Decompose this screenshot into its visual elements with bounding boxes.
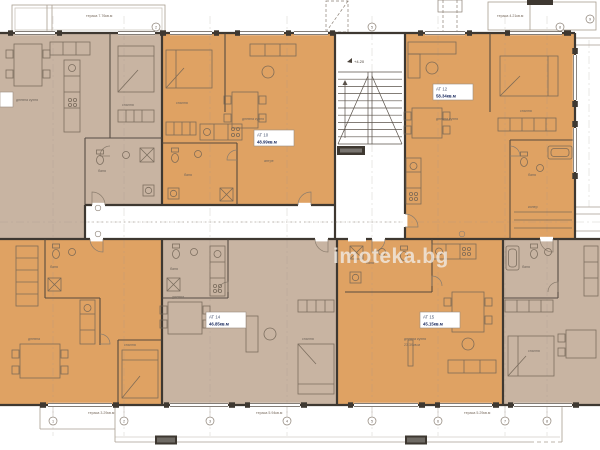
room-label: дневна: [172, 295, 184, 299]
unit-area-text: 48.99кв.м: [257, 140, 277, 145]
watermark-text: imoteka.bg: [333, 245, 449, 268]
terrace-label: тераса 5.94кв.м: [256, 411, 283, 415]
unit-area-text: 45.15кв.м: [423, 322, 443, 327]
room-label: баня: [528, 173, 536, 177]
unit-at14-region: [162, 240, 337, 405]
room-label: 23.39кв.м: [404, 343, 420, 347]
room-label: дневна кухня: [436, 117, 458, 121]
unit-bottomleft-region: [0, 240, 162, 405]
grid-mark: 8: [559, 26, 561, 30]
grid-mark: 7: [504, 420, 506, 424]
shaft-block: [527, 0, 553, 5]
canopy-dashed-outlines: [326, 0, 462, 33]
terrace-label: тераса 4.21кв.м: [497, 14, 524, 18]
unit-label-cutoff-left: [0, 92, 13, 107]
grid-bubbles-bottom: 1 2 3 4 5 6 7 8: [49, 417, 551, 425]
room-label: дневна кухня: [16, 98, 38, 102]
unit-label-at10: АТ 10 48.99кв.м: [254, 130, 294, 146]
terrace-label: тераса 7.76кв.м: [86, 14, 113, 18]
grid-mark: 9: [589, 18, 591, 22]
grid-mark: 5: [371, 26, 373, 30]
right-edge-terrace-lines: [575, 38, 600, 231]
floor-plan-page: +4.20: [0, 0, 600, 450]
unit-id-text: АТ 12: [436, 87, 448, 92]
level-mark-text: +4.20: [354, 59, 365, 64]
unit-id-text: АТ 14: [209, 315, 221, 320]
unit-id-text: АТ 15: [423, 315, 435, 320]
room-label: баня: [170, 267, 178, 271]
room-label: антре: [264, 159, 274, 163]
floor-plan-drawing: +4.20: [0, 0, 600, 450]
grid-mark: 6: [437, 420, 439, 424]
room-label: баня: [98, 169, 106, 173]
room-label: спалня: [302, 337, 314, 341]
room-label: килер: [528, 205, 538, 209]
room-label: баня: [50, 265, 58, 269]
grid-mark: 2: [155, 26, 157, 30]
room-label: баня: [184, 173, 192, 177]
room-label: дневна кухня: [242, 117, 264, 121]
unit-id-text: АТ 10: [257, 133, 269, 138]
grid-bubble-right: 9: [586, 15, 594, 23]
grid-mark: 1: [52, 420, 54, 424]
unit-bottomright-region: [503, 240, 600, 405]
room-label: спалня: [528, 349, 540, 353]
grid-mark: 5: [371, 420, 373, 424]
terrace-top-left: [12, 5, 165, 33]
unit-area-text: 46.85кв.м: [209, 322, 229, 327]
terrace-label: тераса 5.29кв.м: [464, 411, 491, 415]
room-label: дневна кухня: [404, 337, 426, 341]
terrace-label: тераса 3.29кв.м: [88, 411, 115, 415]
grid-mark: 2: [123, 420, 125, 424]
room-label: спалня: [124, 343, 136, 347]
room-label: спалня: [122, 103, 134, 107]
grid-mark: 4: [286, 420, 288, 424]
room-label: спалня: [520, 109, 532, 113]
unit-label-at15: АТ 15 45.15кв.м: [420, 312, 460, 328]
room-label: дневна: [28, 337, 40, 341]
room-label: спалня: [176, 101, 188, 105]
unit-label-at12: АТ 12 58.34кв.м: [433, 84, 473, 100]
room-label: баня: [522, 265, 530, 269]
unit-area-text: 58.34кв.м: [436, 94, 456, 99]
grid-mark: 8: [546, 420, 548, 424]
unit-label-at14: АТ 14 46.85кв.м: [206, 312, 246, 328]
grid-mark: 3: [209, 420, 211, 424]
